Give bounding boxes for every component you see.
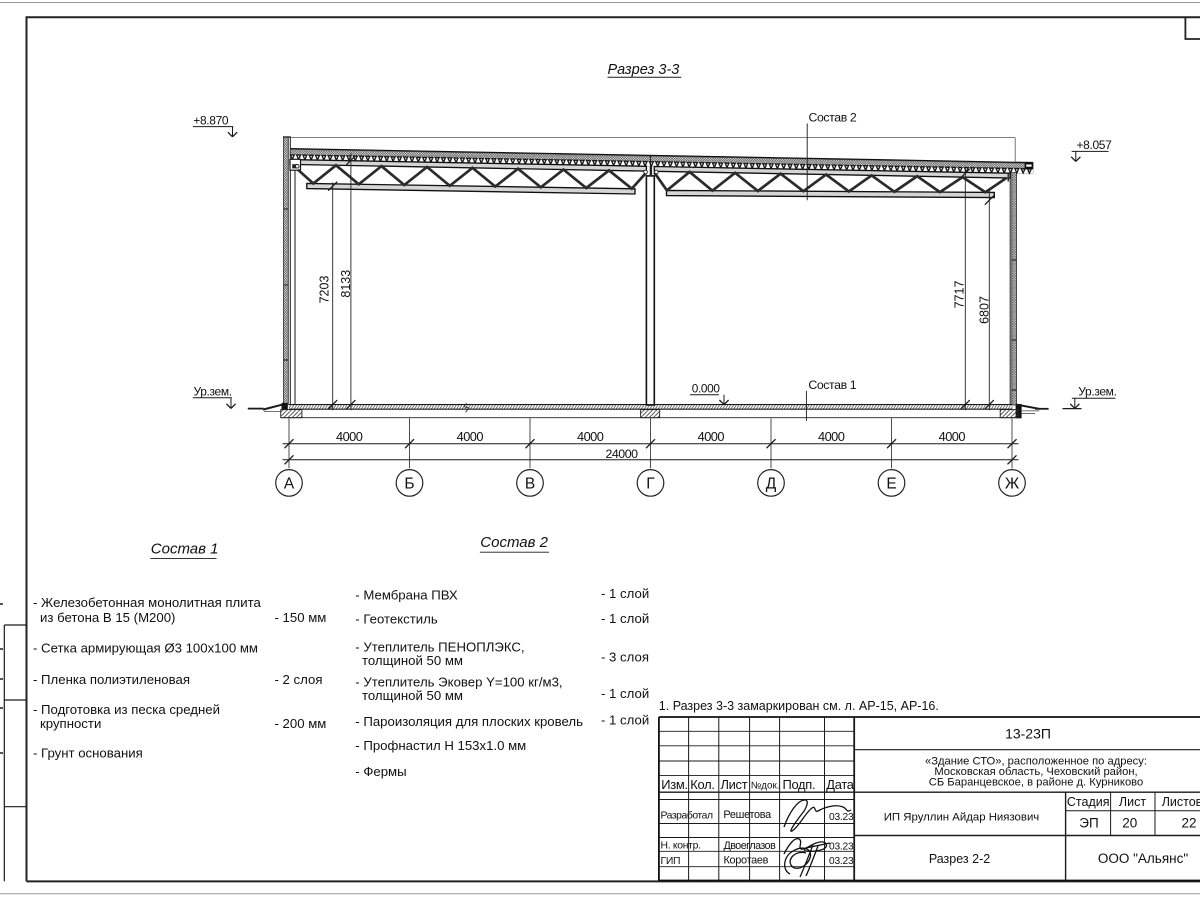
svg-text:ООО "Альянс": ООО "Альянс" [1098, 851, 1188, 866]
svg-text:- 1 слой: - 1 слой [601, 686, 649, 701]
svg-text:6807: 6807 [978, 296, 992, 324]
svg-text:ГИП: ГИП [661, 856, 681, 867]
svg-text:7717: 7717 [953, 281, 967, 309]
svg-text:Разработал: Разработал [661, 809, 713, 821]
svg-text:1. Разрез 3-3 замаркирован см.: 1. Разрез 3-3 замаркирован см. л. АР-15,… [659, 699, 939, 713]
svg-text:4000: 4000 [336, 429, 363, 444]
svg-text:- Пленка полиэтиленовая: - Пленка полиэтиленовая [33, 672, 190, 687]
svg-text:Изм.: Изм. [661, 777, 687, 792]
svg-text:03.23: 03.23 [829, 856, 854, 867]
svg-text:- Геотекстиль: - Геотекстиль [355, 612, 438, 627]
svg-text:В: В [525, 475, 535, 492]
svg-text:7203: 7203 [318, 276, 332, 304]
svg-text:4000: 4000 [939, 429, 966, 444]
svg-text:03.23: 03.23 [829, 812, 854, 823]
svg-text:- 1 слой: - 1 слой [601, 586, 649, 601]
svg-text:толщиной 50 мм: толщиной 50 мм [362, 653, 463, 668]
svg-text:8133: 8133 [339, 270, 353, 298]
svg-text:Листов: Листов [1162, 795, 1200, 809]
svg-text:Подп.: Подп. [783, 777, 816, 792]
svg-text:- Фермы: - Фермы [355, 764, 406, 779]
svg-text:22: 22 [1181, 816, 1196, 831]
svg-text:Состав 1: Состав 1 [151, 541, 219, 558]
svg-text:- 150 мм: - 150 мм [275, 610, 327, 625]
svg-text:Лист: Лист [1119, 795, 1146, 809]
svg-text:24000: 24000 [606, 447, 639, 461]
svg-text:- Мембрана ПВХ: - Мембрана ПВХ [355, 588, 458, 603]
svg-text:4000: 4000 [698, 429, 725, 444]
svg-text:- Грунт основания: - Грунт основания [33, 746, 143, 761]
svg-text:- Профнастил Н 153х1.0 мм: - Профнастил Н 153х1.0 мм [355, 738, 526, 753]
svg-text:Ж: Ж [1005, 475, 1020, 492]
svg-text:- Пароизоляция для плоских кро: - Пароизоляция для плоских кровель [355, 714, 583, 729]
svg-text:ЭП: ЭП [1079, 816, 1098, 831]
svg-text:СБ Баранцевское, в районе д. К: СБ Баранцевское, в районе д. Курниково [929, 777, 1143, 789]
svg-text:№док.: №док. [751, 781, 780, 792]
svg-text:0.000: 0.000 [692, 382, 721, 396]
svg-text:Дата: Дата [826, 777, 854, 792]
svg-text:Состав 2: Состав 2 [809, 110, 857, 124]
svg-text:4000: 4000 [818, 429, 845, 444]
svg-text:Н. контр.: Н. контр. [661, 840, 701, 851]
svg-text:Д: Д [766, 475, 777, 492]
svg-text:Ур.зем.: Ур.зем. [1078, 385, 1116, 399]
svg-text:4000: 4000 [577, 429, 604, 444]
svg-text:- 3 слоя: - 3 слоя [601, 649, 649, 664]
svg-text:+8.057: +8.057 [1077, 138, 1113, 152]
svg-text:из бетона В 15 (М200): из бетона В 15 (М200) [40, 610, 175, 625]
svg-text:- Железобетонная монолитная п: - Железобетонная монолитная плита [33, 595, 262, 610]
svg-text:- 200 мм: - 200 мм [275, 716, 327, 731]
svg-text:крупности: крупности [40, 716, 101, 731]
svg-text:Лист: Лист [721, 777, 748, 792]
svg-text:- 2 слоя: - 2 слоя [275, 672, 323, 687]
svg-text:Б: Б [404, 475, 414, 492]
svg-text:Состав 1: Состав 1 [808, 378, 856, 392]
svg-text:Ур.зем.: Ур.зем. [194, 385, 232, 399]
svg-text:Кол.: Кол. [690, 777, 714, 792]
svg-text:ИП Яруллин Айдар Ниязович: ИП Яруллин Айдар Ниязович [884, 812, 1040, 824]
svg-text:- 1 слой: - 1 слой [601, 611, 649, 626]
svg-text:Стадия: Стадия [1067, 795, 1110, 809]
svg-text:Разрез 3-3: Разрез 3-3 [608, 62, 680, 78]
svg-text:А: А [284, 475, 295, 492]
svg-text:Коротаев: Коротаев [724, 855, 769, 867]
svg-text:+8.870: +8.870 [193, 114, 229, 128]
svg-text:Состав 2: Состав 2 [480, 534, 548, 551]
svg-text:- 1 слой: - 1 слой [601, 713, 649, 728]
svg-text:13-23П: 13-23П [1005, 726, 1051, 742]
svg-text:- Подготовка из песка средней: - Подготовка из песка средней [33, 702, 220, 717]
svg-text:Разрез 2-2: Разрез 2-2 [929, 852, 990, 866]
svg-text:Е: Е [886, 475, 896, 492]
svg-text:03.23: 03.23 [829, 841, 854, 852]
svg-text:Г: Г [646, 475, 655, 492]
svg-text:толщиной 50 мм: толщиной 50 мм [362, 688, 463, 703]
svg-text:4000: 4000 [457, 429, 484, 444]
svg-text:Решетова: Решетова [723, 809, 772, 821]
svg-text:20: 20 [1122, 816, 1137, 831]
svg-text:- Сетка армирующая Ø3 100х100: - Сетка армирующая Ø3 100х100 мм [33, 641, 258, 656]
svg-text:Двоеглазов: Двоеглазов [724, 840, 777, 852]
